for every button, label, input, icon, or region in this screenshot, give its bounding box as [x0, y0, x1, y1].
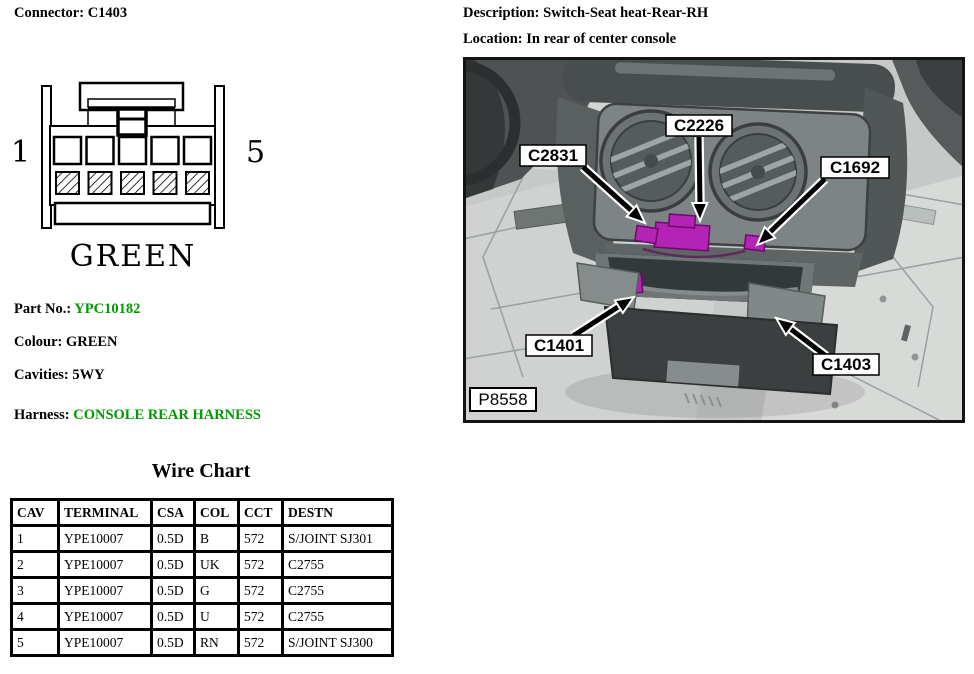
label-c2226: C2226: [666, 115, 732, 136]
location-photo: C2831 C2226 C1692 C1401 C1403 P8558: [463, 57, 965, 423]
cell-cav: 2: [12, 552, 59, 578]
cavities-line: Cavities: 5WY: [14, 367, 105, 384]
cell-cct: 572: [239, 630, 283, 656]
wire-chart-title: Wire Chart: [10, 460, 392, 483]
cell-destn: C2755: [283, 578, 393, 604]
cell-cav: 4: [12, 604, 59, 630]
cell-col: UK: [195, 552, 239, 578]
connector-title: Connector: C1403: [14, 5, 127, 22]
cell-csa: 0.5D: [152, 578, 195, 604]
connector-bottom-bar: [55, 203, 210, 224]
pin-1-label: 1: [11, 135, 30, 170]
label-c2831-text: C2831: [528, 146, 578, 165]
label-c1401: C1401: [526, 335, 592, 356]
part-no-label: Part No.:: [14, 301, 71, 317]
cell-terminal: YPE10007: [59, 552, 152, 578]
cell-csa: 0.5D: [152, 630, 195, 656]
cell-terminal: YPE10007: [59, 578, 152, 604]
label-c1692: C1692: [821, 157, 889, 178]
connector-c2831-part: [635, 226, 658, 244]
cell-csa: 0.5D: [152, 604, 195, 630]
cell-cct: 572: [239, 604, 283, 630]
cell-col: B: [195, 526, 239, 552]
cell-cav: 1: [12, 526, 59, 552]
document-page: Connector: C1403: [0, 0, 974, 674]
harness-value: CONSOLE REAR HARNESS: [73, 407, 261, 423]
col-header-csa: CSA: [152, 500, 195, 526]
table-row: 1 YPE10007 0.5D B 572 S/JOINT SJ301: [12, 526, 393, 552]
cell-destn: S/JOINT SJ301: [283, 526, 393, 552]
col-header-cav: CAV: [12, 500, 59, 526]
connector-outline: [42, 83, 224, 228]
cell-col: RN: [195, 630, 239, 656]
connector-face-diagram: 1 5 GREEN: [10, 80, 272, 276]
col-header-col: COL: [195, 500, 239, 526]
cell-destn: S/JOINT SJ300: [283, 630, 393, 656]
cell-destn: C2755: [283, 604, 393, 630]
photo-id-text: P8558: [478, 390, 527, 409]
harness-label: Harness:: [14, 407, 70, 423]
colour-line: Colour: GREEN: [14, 334, 118, 351]
col-header-cct: CCT: [239, 500, 283, 526]
cell-terminal: YPE10007: [59, 526, 152, 552]
cell-csa: 0.5D: [152, 552, 195, 578]
part-no-value: YPC10182: [74, 301, 140, 317]
pin-5-label: 5: [246, 135, 265, 170]
cell-col: U: [195, 604, 239, 630]
harness-line: Harness: CONSOLE REAR HARNESS: [14, 407, 261, 424]
table-row: 2 YPE10007 0.5D UK 572 C2755: [12, 552, 393, 578]
location-line: Location: In rear of center console: [463, 31, 676, 48]
label-c1401-text: C1401: [534, 336, 584, 355]
label-c1692-text: C1692: [830, 158, 880, 177]
connector-colour-caption: GREEN: [70, 239, 197, 274]
connector-side-tab-right: [215, 86, 224, 228]
label-c1403-text: C1403: [821, 355, 871, 374]
cell-cct: 572: [239, 552, 283, 578]
cell-cct: 572: [239, 526, 283, 552]
wire-chart-table: CAV TERMINAL CSA COL CCT DESTN 1 YPE1000…: [10, 498, 394, 657]
wire-chart-header-row: CAV TERMINAL CSA COL CCT DESTN: [12, 500, 393, 526]
description-line: Description: Switch-Seat heat-Rear-RH: [463, 5, 708, 22]
label-c1403: C1403: [813, 354, 879, 375]
cell-destn: C2755: [283, 552, 393, 578]
col-header-terminal: TERMINAL: [59, 500, 152, 526]
col-header-destn: DESTN: [283, 500, 393, 526]
label-c2226-text: C2226: [674, 116, 724, 135]
cell-cct: 572: [239, 578, 283, 604]
label-c2831: C2831: [520, 145, 586, 166]
cell-terminal: YPE10007: [59, 630, 152, 656]
table-row: 4 YPE10007 0.5D U 572 C2755: [12, 604, 393, 630]
connector-hatched-cavities: [56, 172, 209, 194]
cell-cav: 3: [12, 578, 59, 604]
cell-col: G: [195, 578, 239, 604]
photo-id-badge: P8558: [470, 388, 536, 411]
cell-cav: 5: [12, 630, 59, 656]
connector-latch-strip: [88, 99, 175, 107]
connector-cavities: [54, 137, 211, 164]
connector-latch-notch: [118, 109, 146, 135]
cell-csa: 0.5D: [152, 526, 195, 552]
part-no-line: Part No.: YPC10182: [14, 301, 140, 318]
cell-terminal: YPE10007: [59, 604, 152, 630]
table-row: 3 YPE10007 0.5D G 572 C2755: [12, 578, 393, 604]
table-row: 5 YPE10007 0.5D RN 572 S/JOINT SJ300: [12, 630, 393, 656]
